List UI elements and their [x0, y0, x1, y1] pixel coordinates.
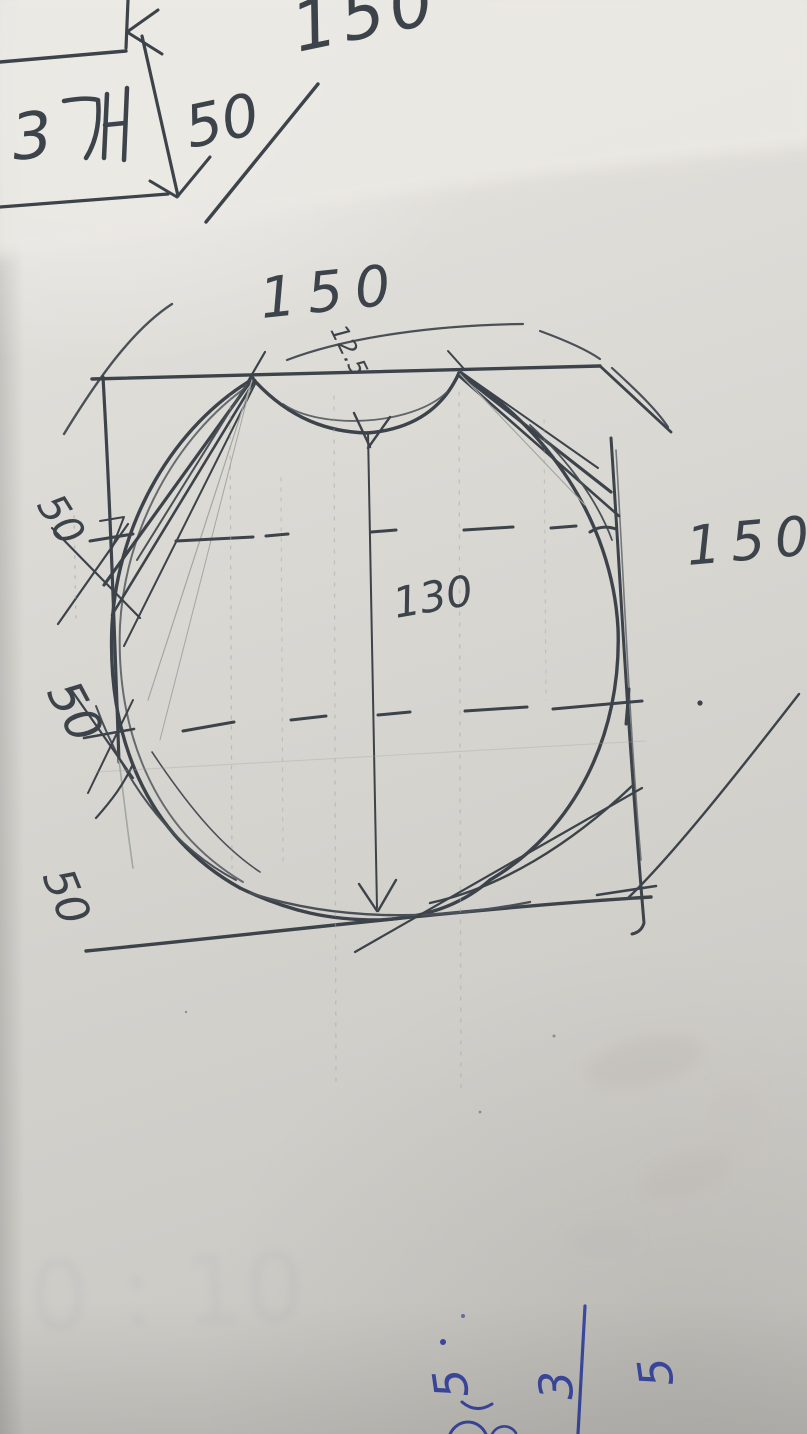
egg-left-side	[112, 379, 253, 888]
dot-mark	[697, 700, 702, 705]
egg-bottom-echo	[250, 893, 530, 915]
chamfer-lines	[52, 351, 799, 952]
label-offset-50-2: 50	[35, 671, 113, 751]
photo-of-sketch: 0 : 10 3 50 150	[0, 0, 807, 1434]
label-offset-50-1: 50	[28, 486, 94, 554]
square-bottom-edge	[86, 897, 651, 951]
dashed-centerlines	[90, 526, 642, 731]
label-height-130: 130	[389, 566, 476, 628]
egg-outline	[112, 373, 619, 920]
paper-smudges	[569, 1026, 767, 1254]
bottom-shadow	[0, 1300, 807, 1434]
label-top-width-150: 150	[257, 252, 406, 332]
paper-specks	[185, 1011, 556, 1114]
center-height-line	[354, 413, 396, 911]
egg-top-concave	[253, 373, 459, 433]
label-count-3: 3	[8, 98, 56, 176]
sketch-canvas: 0 : 10 3 50 150	[0, 0, 807, 1434]
label-side-150: 150	[684, 504, 807, 578]
egg-right-side	[459, 373, 618, 880]
square-corner-extension	[600, 366, 671, 432]
label-offset-50-3: 50	[32, 861, 100, 932]
box-note-vline	[126, 0, 128, 48]
egg-left-side-echo	[120, 386, 248, 882]
